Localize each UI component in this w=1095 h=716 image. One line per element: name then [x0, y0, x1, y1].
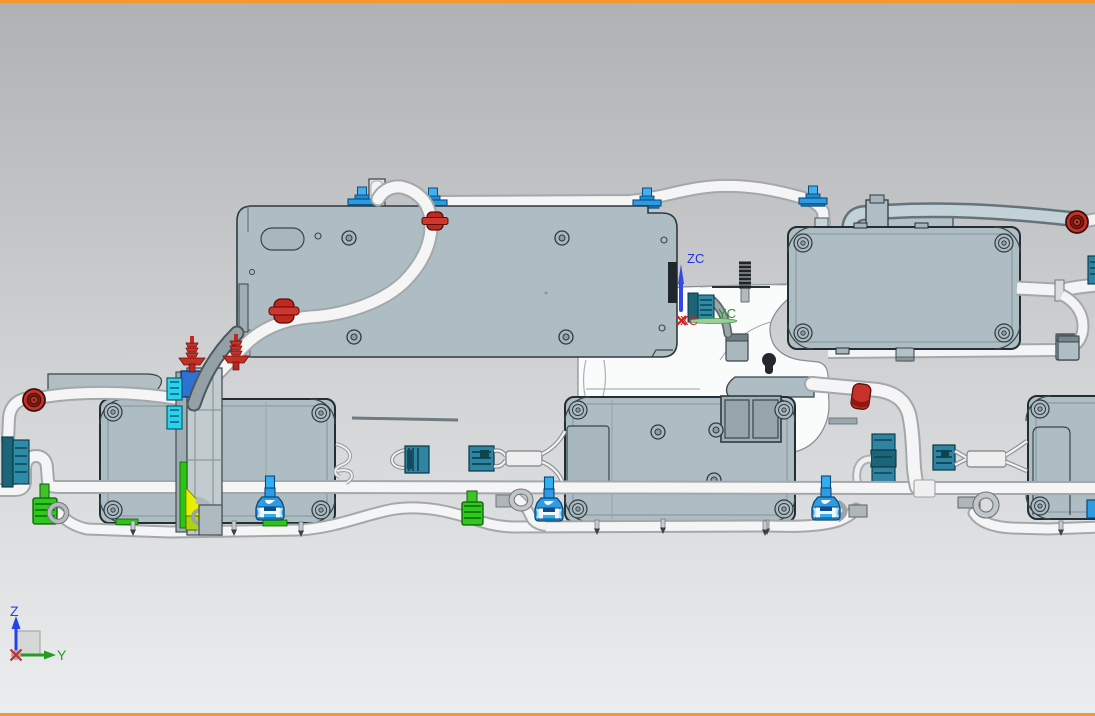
svg-text:YC: YC	[718, 306, 736, 321]
svg-text:Y: Y	[57, 647, 67, 663]
svg-text:ZC: ZC	[687, 251, 704, 266]
svg-text:XC: XC	[680, 313, 698, 328]
svg-text:Z: Z	[10, 603, 19, 619]
